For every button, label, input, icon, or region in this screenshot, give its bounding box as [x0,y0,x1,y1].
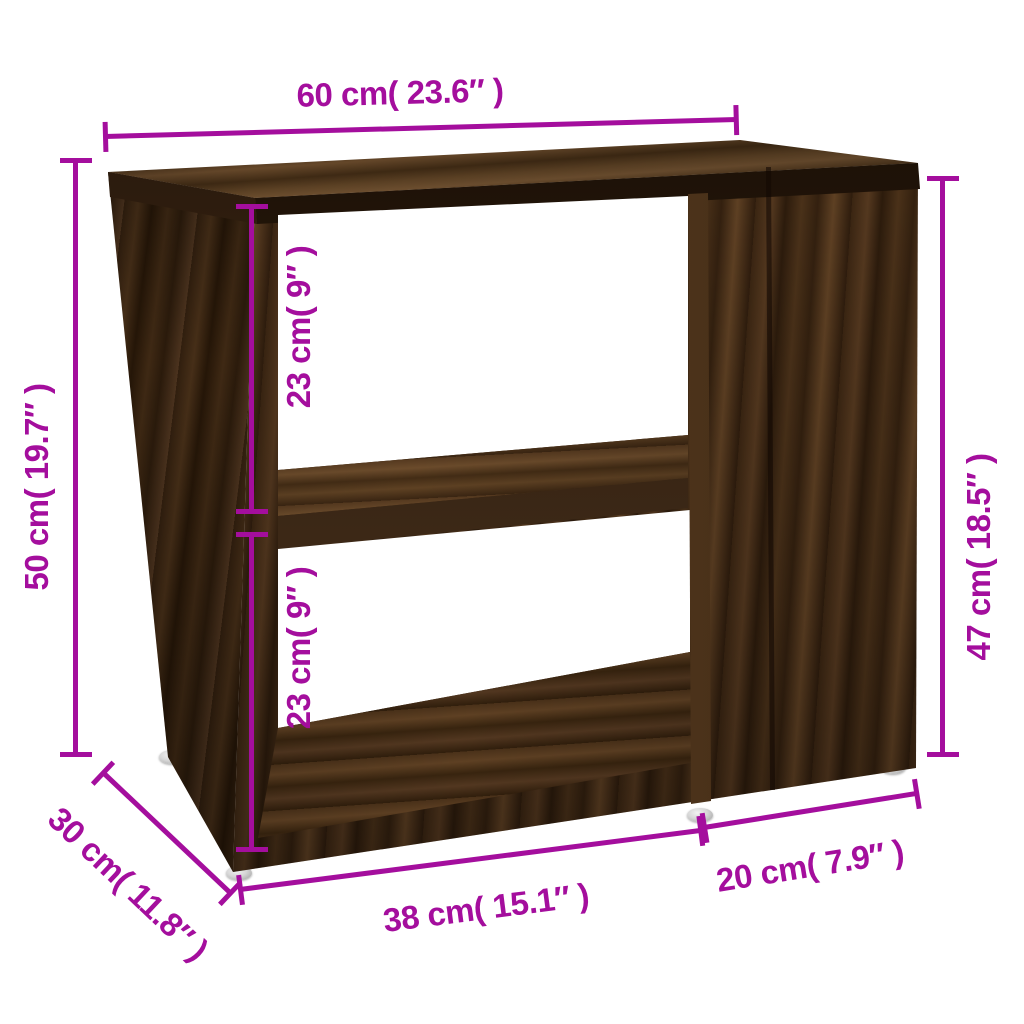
dimension-line [940,178,945,755]
dimension-line [249,534,254,850]
dimension-tick [103,121,109,151]
dimension-label: 50 cm( 19.7″ ) [18,384,56,591]
dimension-line [73,160,78,755]
dimension-label: 23 cm( 9″ ) [280,567,318,730]
dimension-label: 47 cm( 18.5″ ) [960,454,998,661]
product-dimension-diagram: { "diagram": { "type": "furniture-dimens… [0,0,1024,1024]
dimension-tick [60,158,92,163]
dimension-label: 60 cm( 23.6″ ) [296,71,504,114]
dimension-tick [733,104,739,134]
dimension-tick [236,847,268,852]
dimension-label: 23 cm( 9″ ) [280,246,318,409]
dimension-tick [927,752,959,757]
dimension-tick [236,204,268,209]
dimension-tick [60,752,92,757]
dimension-tick [236,509,268,514]
dimension-tick [236,532,268,537]
dimension-line [249,206,254,512]
dimension-tick [927,176,959,181]
